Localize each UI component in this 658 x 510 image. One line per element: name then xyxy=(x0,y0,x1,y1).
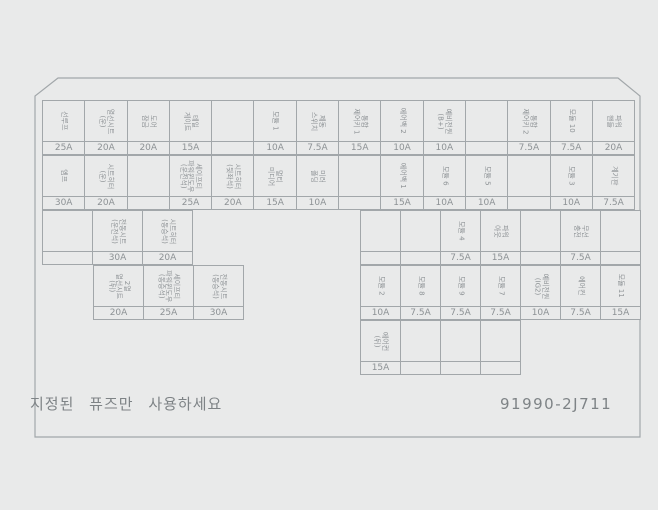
fuse-label xyxy=(521,211,560,251)
fuse-cell: 시트히터 (뒷좌석)20A xyxy=(211,155,254,210)
fuse-cell: 모듈 610A xyxy=(423,155,466,210)
fuse-label xyxy=(401,211,440,251)
fuse-label: 전동시트 (동승석) xyxy=(194,266,243,306)
fuse-label: 제동 스위치 xyxy=(297,101,338,141)
fuse-cell-empty xyxy=(360,210,401,265)
fuse-amp-rating: 15A xyxy=(381,196,422,209)
fuse-label: 예비전원 (IG2) xyxy=(521,266,560,306)
fuse-amp-rating xyxy=(521,251,560,264)
fuse-amp-rating: 7.5A xyxy=(508,141,549,154)
fuse-amp-rating: 30A xyxy=(93,251,142,264)
fuse-amp-rating xyxy=(466,141,507,154)
fuse-label: 모듈 8 xyxy=(401,266,440,306)
fuse-amp-rating: 20A xyxy=(212,196,253,209)
fuse-amp-rating: 25A xyxy=(144,306,193,319)
fuse-amp-rating: 7.5A xyxy=(297,141,338,154)
fuse-label: 시트히터 (뒷좌석) xyxy=(212,156,253,196)
fuse-cell: 세이프티 파워윈도우 (운전석)25A xyxy=(169,155,212,210)
fuse-label: 도어 잠금 xyxy=(128,101,169,141)
fuse-amp-rating: 30A xyxy=(194,306,243,319)
fuse-amp-rating: 20A xyxy=(85,141,126,154)
fuse-row-left-row-3: 전동시트 (운전석)30A시트히터 (동승석)20A xyxy=(42,210,193,265)
fuse-amp-rating xyxy=(361,251,400,264)
fuse-amp-rating: 10A xyxy=(521,306,560,319)
fuse-row-right-row-4: 모듈 210A모듈 87.5A모듈 97.5A모듈 77.5A예비전원 (IG2… xyxy=(360,265,641,320)
fuse-amp-rating: 15A xyxy=(339,141,380,154)
fuse-amp-rating xyxy=(508,196,549,209)
fuse-label: 에어백 1 xyxy=(381,156,422,196)
fuse-label: 예비전원 (B+) xyxy=(424,101,465,141)
fuse-amp-rating: 15A xyxy=(170,141,211,154)
fuse-cell: 테일 게이트15A xyxy=(169,100,212,155)
fuse-label xyxy=(401,321,440,361)
fuse-label: 모듈 1 xyxy=(254,101,295,141)
fuse-amp-rating: 20A xyxy=(94,306,143,319)
part-number: 91990-2J711 xyxy=(500,395,612,413)
fuse-cell-empty xyxy=(440,320,481,375)
fuse-label: 모듈 9 xyxy=(441,266,480,306)
fuse-label: 통합 제어키 1 xyxy=(339,101,380,141)
fuse-amp-rating: 10A xyxy=(254,141,295,154)
fuse-cell-empty xyxy=(520,210,561,265)
fuse-label: 에어컨 (뒤) xyxy=(361,321,400,361)
fuse-amp-rating: 25A xyxy=(170,196,211,209)
fuse-cell: 모듈 510A xyxy=(465,155,508,210)
fuse-label: 세이프티 파워윈도우 (운전석) xyxy=(170,156,211,196)
fuse-cell: 예비전원 (IG2)10A xyxy=(520,265,561,320)
fuse-amp-rating xyxy=(339,196,380,209)
fuse-cell: 멀티 미디어15A xyxy=(253,155,296,210)
fuse-amp-rating: 7.5A xyxy=(551,141,592,154)
fuse-label xyxy=(128,156,169,196)
fuse-amp-rating xyxy=(401,251,440,264)
fuse-cell: 전동시트 (운전석)30A xyxy=(92,210,143,265)
fuse-amp-rating xyxy=(601,251,640,264)
fuse-label: 모듈 5 xyxy=(466,156,507,196)
fuse-amp-rating: 7.5A xyxy=(561,306,600,319)
fuse-cell: 모듈 87.5A xyxy=(400,265,441,320)
fuse-cell-empty xyxy=(480,320,521,375)
fuse-row-right-row-3: 모듈 47.5A파워 아웃15A무선 충전7.5A xyxy=(360,210,641,265)
fuse-label xyxy=(361,211,400,251)
fuse-amp-rating: 15A xyxy=(481,251,520,264)
fuse-cell: 예비전원 (B+)10A xyxy=(423,100,466,155)
fuse-amp-rating: 10A xyxy=(361,306,400,319)
fuse-label: 테일 게이트 xyxy=(170,101,211,141)
fuse-cell-empty xyxy=(600,210,641,265)
fuse-cell: 에어컨 (뒤)15A xyxy=(360,320,401,375)
fuse-amp-rating: 15A xyxy=(254,196,295,209)
fuse-cell: 모듈 1115A xyxy=(600,265,641,320)
fuse-label: 모듈 4 xyxy=(441,211,480,251)
fuse-amp-rating: 7.5A xyxy=(441,251,480,264)
fuse-label xyxy=(212,101,253,141)
fuse-label: 계기판 xyxy=(593,156,634,196)
fuse-amp-rating: 20A xyxy=(85,196,126,209)
fuse-amp-rating xyxy=(43,251,92,264)
fuse-label: 모듈 11 xyxy=(601,266,640,306)
fuse-cell: 미러 폴딩10A xyxy=(296,155,339,210)
fuse-amp-rating: 7.5A xyxy=(593,196,634,209)
fuse-cell: 에어백 210A xyxy=(380,100,423,155)
fuse-amp-rating: 7.5A xyxy=(481,306,520,319)
fuse-cell: 파워 핸들20A xyxy=(592,100,635,155)
fuse-label xyxy=(441,321,480,361)
fuse-cell-empty xyxy=(42,210,93,265)
fuse-label: 세이프티 파워윈도우 (동승석) xyxy=(144,266,193,306)
fuse-amp-rating: 20A xyxy=(593,141,634,154)
fuse-amp-rating: 10A xyxy=(466,196,507,209)
fuse-label: 시트히터 (운) xyxy=(85,156,126,196)
fuse-cell: 모듈 97.5A xyxy=(440,265,481,320)
fuse-amp-rating xyxy=(128,196,169,209)
fuse-label: 파워 아웃 xyxy=(481,211,520,251)
fuse-label xyxy=(481,321,520,361)
fuse-cell: 통합 제어키 27.5A xyxy=(507,100,550,155)
fuse-amp-rating: 15A xyxy=(361,361,400,374)
fuse-amp-rating: 10A xyxy=(424,196,465,209)
fuse-cell-empty xyxy=(400,210,441,265)
fuse-amp-rating: 10A xyxy=(297,196,338,209)
fuse-cell: 시트히터 (운)20A xyxy=(84,155,127,210)
fuse-amp-rating xyxy=(401,361,440,374)
fuse-label: 미러 폴딩 xyxy=(297,156,338,196)
fuse-cell: 엠프30A xyxy=(42,155,85,210)
fuse-amp-rating xyxy=(481,361,520,374)
fuse-cell: 에어백 115A xyxy=(380,155,423,210)
fuse-amp-rating: 25A xyxy=(43,141,84,154)
fuse-cell: 모듈 110A xyxy=(253,100,296,155)
fuse-amp-rating: 10A xyxy=(424,141,465,154)
fuse-cell-empty xyxy=(507,155,550,210)
fuse-cell: 무선 충전7.5A xyxy=(560,210,601,265)
fuse-cell: 에어컨7.5A xyxy=(560,265,601,320)
fuse-label: 멀티 미디어 xyxy=(254,156,295,196)
fuse-cell: 모듈 210A xyxy=(360,265,401,320)
fuse-amp-rating xyxy=(212,141,253,154)
fuse-label xyxy=(508,156,549,196)
fuse-amp-rating: 30A xyxy=(43,196,84,209)
fuse-cell-empty xyxy=(338,155,381,210)
fuse-cell-empty xyxy=(465,100,508,155)
fuse-label: 통합 제어키 2 xyxy=(508,101,549,141)
fuse-label: 에어컨 xyxy=(561,266,600,306)
fuse-label: 에어백 2 xyxy=(381,101,422,141)
fuse-cell-empty xyxy=(400,320,441,375)
fuse-label: 모듈 6 xyxy=(424,156,465,196)
fuse-label xyxy=(339,156,380,196)
fuse-label: 모듈 10 xyxy=(551,101,592,141)
fuse-label: 2열 열선시트 (뒤) xyxy=(94,266,143,306)
fuse-cell: 계기판7.5A xyxy=(592,155,635,210)
fuse-cell: 열선시트 (운)20A xyxy=(84,100,127,155)
fuse-amp-rating: 20A xyxy=(128,141,169,154)
fuse-amp-rating: 7.5A xyxy=(401,306,440,319)
fuse-row-right-row-5: 에어컨 (뒤)15A xyxy=(360,320,521,375)
fuse-label: 파워 핸들 xyxy=(593,101,634,141)
fuse-label xyxy=(466,101,507,141)
fuse-cell: 제동 스위치7.5A xyxy=(296,100,339,155)
fuse-label: 모듈 7 xyxy=(481,266,520,306)
fuse-row-main-row-2: 엠프30A시트히터 (운)20A세이프티 파워윈도우 (운전석)25A시트히터 … xyxy=(42,155,635,210)
fuse-label xyxy=(601,211,640,251)
fuse-row-left-row-4: 2열 열선시트 (뒤)20A세이프티 파워윈도우 (동승석)25A전동시트 (동… xyxy=(93,265,244,320)
fuse-amp-rating: 15A xyxy=(601,306,640,319)
fuse-cell: 모듈 107.5A xyxy=(550,100,593,155)
fuse-label: 모듈 2 xyxy=(361,266,400,306)
fuse-label: 시트히터 (동승석) xyxy=(143,211,192,251)
fuse-cell: 모듈 310A xyxy=(550,155,593,210)
fuse-cell-empty xyxy=(211,100,254,155)
fuse-amp-rating: 10A xyxy=(381,141,422,154)
warning-text: 지정된 퓨즈만 사용하세요 xyxy=(30,393,222,414)
fuse-label: 모듈 3 xyxy=(551,156,592,196)
fuse-label: 엠프 xyxy=(43,156,84,196)
fuse-cell: 시트히터 (동승석)20A xyxy=(142,210,193,265)
fuse-cell: 모듈 47.5A xyxy=(440,210,481,265)
fuse-label: 열선시트 (운) xyxy=(85,101,126,141)
fuse-row-main-row-1: 선루프25A열선시트 (운)20A도어 잠금20A테일 게이트15A모듈 110… xyxy=(42,100,635,155)
fuse-box-diagram: 선루프25A열선시트 (운)20A도어 잠금20A테일 게이트15A모듈 110… xyxy=(0,0,658,510)
fuse-cell: 세이프티 파워윈도우 (동승석)25A xyxy=(143,265,194,320)
fuse-cell-empty xyxy=(127,155,170,210)
fuse-cell: 2열 열선시트 (뒤)20A xyxy=(93,265,144,320)
fuse-label: 전동시트 (운전석) xyxy=(93,211,142,251)
fuse-amp-rating: 10A xyxy=(551,196,592,209)
fuse-label xyxy=(43,211,92,251)
fuse-cell: 선루프25A xyxy=(42,100,85,155)
fuse-label: 무선 충전 xyxy=(561,211,600,251)
fuse-cell: 전동시트 (동승석)30A xyxy=(193,265,244,320)
fuse-cell: 모듈 77.5A xyxy=(480,265,521,320)
fuse-label: 선루프 xyxy=(43,101,84,141)
fuse-amp-rating xyxy=(441,361,480,374)
fuse-amp-rating: 7.5A xyxy=(561,251,600,264)
fuse-cell: 통합 제어키 115A xyxy=(338,100,381,155)
fuse-amp-rating: 20A xyxy=(143,251,192,264)
fuse-amp-rating: 7.5A xyxy=(441,306,480,319)
fuse-cell: 도어 잠금20A xyxy=(127,100,170,155)
fuse-cell: 파워 아웃15A xyxy=(480,210,521,265)
